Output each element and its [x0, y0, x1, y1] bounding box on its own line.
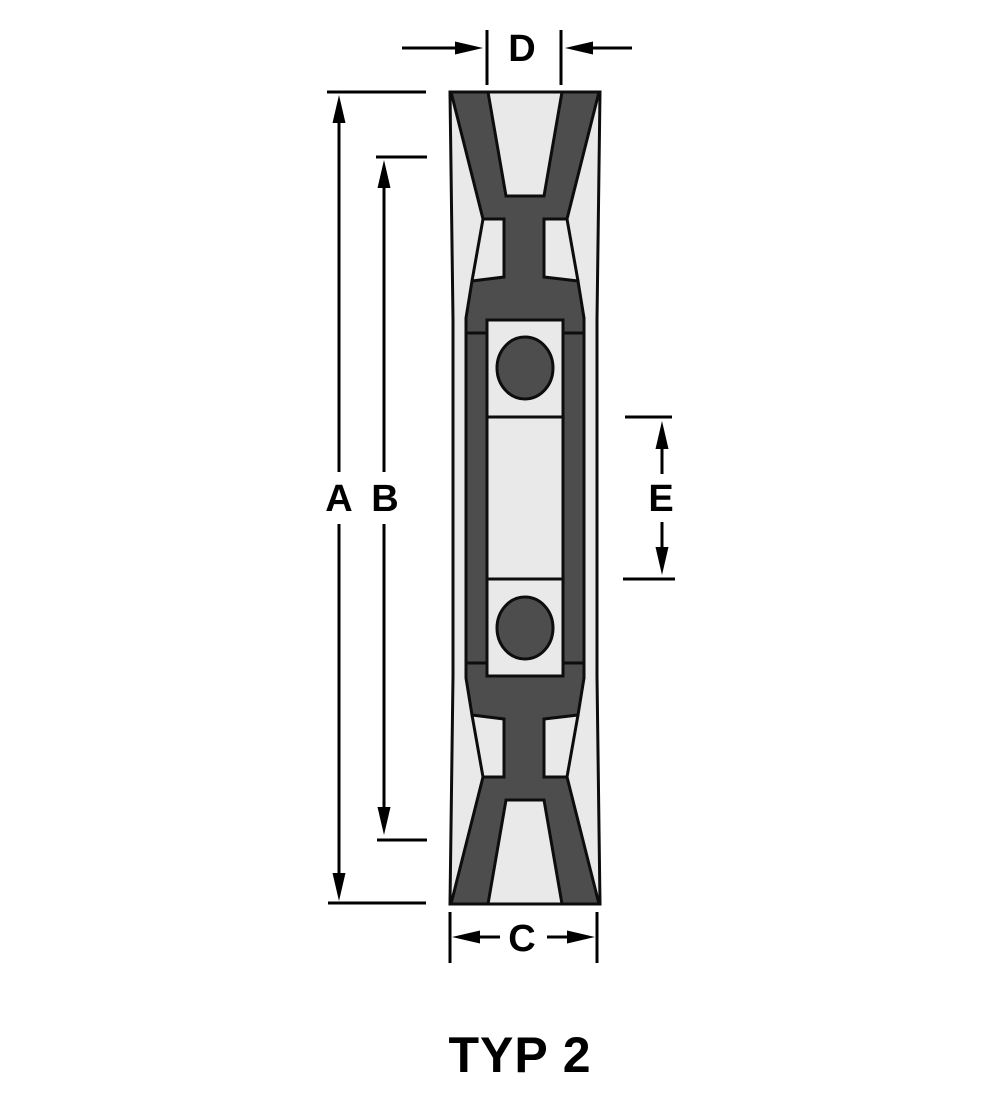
setscrew-hole-top — [497, 337, 553, 399]
setscrew-hole-bottom — [497, 597, 553, 659]
dim-e-label: E — [648, 478, 673, 520]
drawing-canvas: A B D E — [0, 0, 1000, 1104]
figure-title: TYP 2 — [448, 1027, 591, 1083]
dim-b-label: B — [371, 478, 398, 520]
dim-d-label: D — [508, 28, 535, 70]
dim-a-label: A — [325, 478, 352, 520]
pulley-cross-section-diagram: A B D E — [0, 0, 1000, 1104]
dim-c-label: C — [508, 918, 535, 960]
